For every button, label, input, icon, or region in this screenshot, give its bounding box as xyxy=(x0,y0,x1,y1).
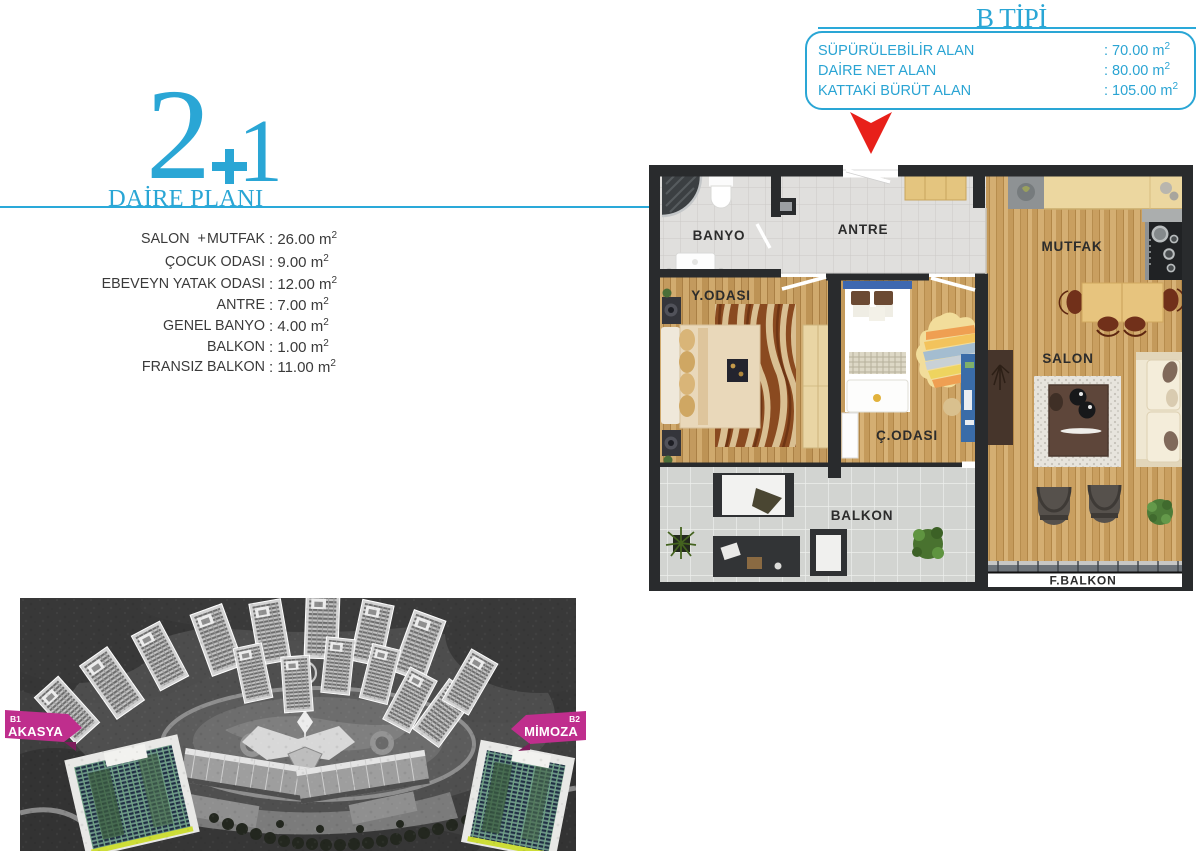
svg-text:ANTRE: ANTRE xyxy=(838,222,889,237)
svg-text:MUTFAK: MUTFAK xyxy=(1041,239,1102,254)
svg-text:F.BALKON: F.BALKON xyxy=(1049,574,1116,588)
svg-text:BALKON: BALKON xyxy=(831,508,894,523)
svg-text:BANYO: BANYO xyxy=(693,228,746,243)
svg-text:SALON: SALON xyxy=(1042,351,1093,366)
svg-text:Y.ODASI: Y.ODASI xyxy=(691,288,751,303)
svg-text:MİMOZA: MİMOZA xyxy=(524,724,578,739)
svg-text:AKASYA: AKASYA xyxy=(8,724,63,739)
svg-text:B1: B1 xyxy=(10,714,21,724)
svg-text:Ç.ODASI: Ç.ODASI xyxy=(876,428,938,443)
svg-text:B2: B2 xyxy=(569,714,580,724)
